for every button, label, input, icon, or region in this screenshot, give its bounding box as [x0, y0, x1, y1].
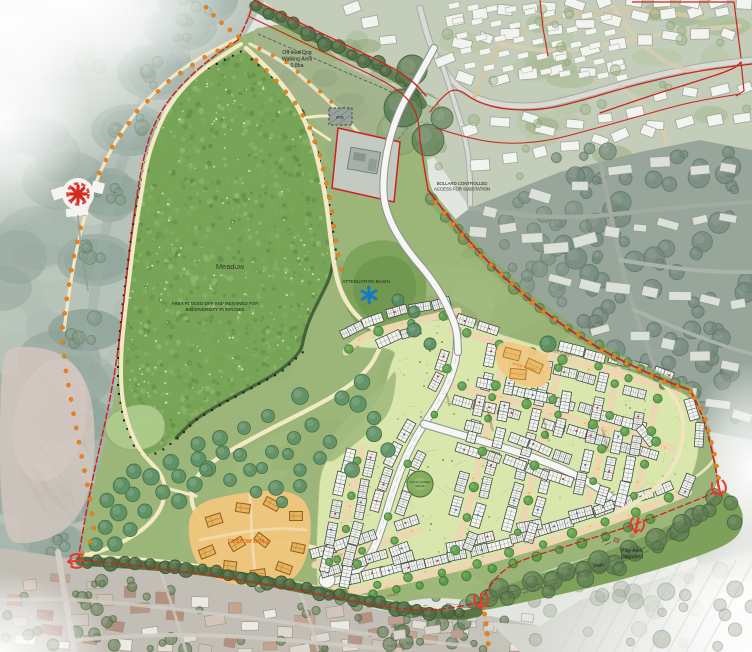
svg-text:SPACE: SPACE: [415, 484, 425, 488]
svg-text:CUSTOM BUILD: CUSTOM BUILD: [228, 539, 271, 545]
svg-text:P/S: P/S: [336, 115, 343, 120]
